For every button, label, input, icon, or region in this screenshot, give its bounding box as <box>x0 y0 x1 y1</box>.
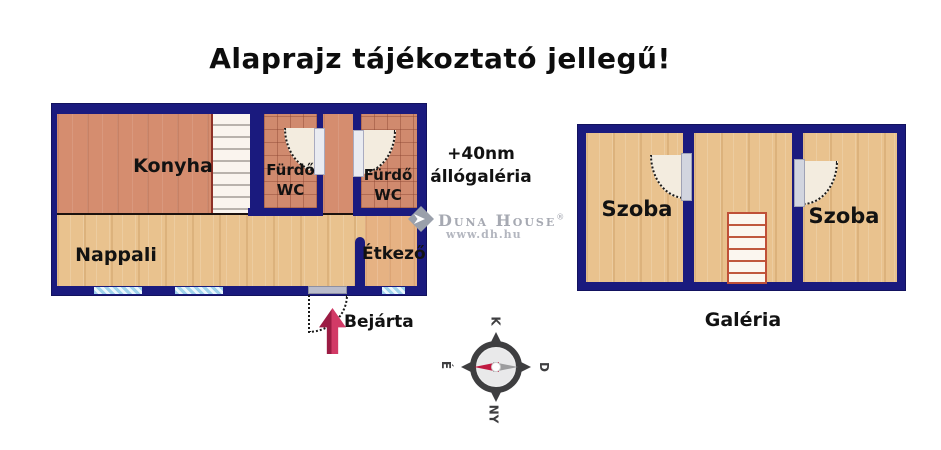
brand-url: www.dh.hu <box>446 228 522 241</box>
gallery-size-note-line2: állógaléria <box>427 166 535 189</box>
room-label-bathroom2: Fürdő WC <box>358 165 418 205</box>
compass-label-north: É <box>439 361 453 369</box>
room-label-bathroom1-line1: Fürdő <box>261 160 320 180</box>
corridor-living-divider <box>323 213 353 215</box>
room-label-bathroom1-line2: WC <box>261 180 320 200</box>
room-label-szoba-right: Szoba <box>794 204 894 228</box>
compass-label-east: K <box>489 316 503 325</box>
staircase-gallery <box>727 212 767 284</box>
gallery-floor-plan: Szoba Szoba <box>578 125 905 290</box>
ground-floor-plan: Konyha Fürdő WC Fürdő WC Nappali Étkező <box>52 104 426 295</box>
window <box>382 287 405 294</box>
kitchen-living-divider <box>57 213 248 215</box>
floor-plan-page: Alaprajz tájékoztató jellegű! <box>0 0 941 450</box>
room-label-bathroom1: Fürdő WC <box>261 160 320 200</box>
wall-under-bathroom1 <box>248 208 323 216</box>
room-label-bathroom2-line2: WC <box>358 185 418 205</box>
gallery-size-note-line1: +40nm <box>427 143 535 166</box>
szoba-right-door-leaf <box>794 159 805 207</box>
dunahouse-diamond-icon <box>407 205 435 233</box>
room-label-kitchen: Konyha <box>108 156 238 178</box>
compass: K D NY É <box>436 312 556 427</box>
compass-label-west: NY <box>486 405 500 424</box>
gallery-caption: Galéria <box>643 310 843 332</box>
room-label-szoba-left: Szoba <box>587 197 687 221</box>
room-label-living: Nappali <box>61 245 171 267</box>
room-label-dining: Étkező <box>362 245 419 265</box>
corridor-floor <box>323 114 353 213</box>
window <box>175 287 223 294</box>
compass-label-south: D <box>537 362 551 372</box>
entrance-label: Bejárta <box>344 313 408 333</box>
window <box>94 287 142 294</box>
szoba-left-door-leaf <box>681 153 692 201</box>
gallery-size-note: +40nm állógaléria <box>427 143 535 189</box>
entrance-door-sill <box>308 286 347 294</box>
page-title: Alaprajz tájékoztató jellegű! <box>0 42 880 75</box>
room-label-bathroom2-line1: Fürdő <box>358 165 418 185</box>
compass-icon <box>458 329 534 405</box>
